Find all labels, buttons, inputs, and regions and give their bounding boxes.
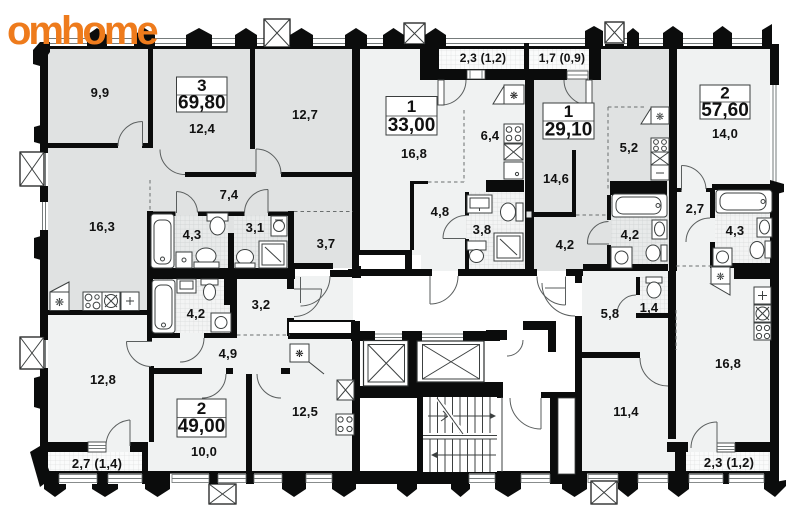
svg-text:❋: ❋ xyxy=(295,349,303,360)
svg-text:3,7: 3,7 xyxy=(317,236,336,251)
svg-text:2,7: 2,7 xyxy=(686,201,705,216)
svg-text:69,80: 69,80 xyxy=(178,93,226,114)
svg-text:❋: ❋ xyxy=(55,297,64,309)
svg-text:33,00: 33,00 xyxy=(388,115,436,136)
svg-text:57,60: 57,60 xyxy=(701,100,749,121)
svg-text:3,2: 3,2 xyxy=(252,297,271,312)
svg-text:4,8: 4,8 xyxy=(431,204,450,219)
svg-text:1,4: 1,4 xyxy=(640,300,659,315)
svg-text:1: 1 xyxy=(407,97,416,116)
svg-text:4,3: 4,3 xyxy=(726,223,745,238)
svg-text:5,2: 5,2 xyxy=(620,140,639,155)
svg-text:4,3: 4,3 xyxy=(183,227,202,242)
svg-text:3,1: 3,1 xyxy=(246,220,265,235)
svg-text:4,9: 4,9 xyxy=(219,346,238,361)
svg-text:1: 1 xyxy=(564,102,573,121)
svg-text:omhome: omhome xyxy=(7,9,157,53)
svg-text:12,4: 12,4 xyxy=(189,121,216,136)
svg-text:❋: ❋ xyxy=(656,112,664,123)
svg-text:4,2: 4,2 xyxy=(187,306,206,321)
svg-text:1,7 (0,9): 1,7 (0,9) xyxy=(539,51,586,65)
svg-text:16,8: 16,8 xyxy=(401,146,427,161)
svg-text:29,10: 29,10 xyxy=(545,120,593,141)
svg-text:❋: ❋ xyxy=(716,272,724,283)
svg-text:2,3 (1,2): 2,3 (1,2) xyxy=(704,455,754,470)
svg-text:10,0: 10,0 xyxy=(191,444,217,459)
svg-text:3,8: 3,8 xyxy=(473,222,492,237)
svg-text:❋: ❋ xyxy=(510,91,518,102)
svg-text:5,8: 5,8 xyxy=(601,306,620,321)
svg-text:12,5: 12,5 xyxy=(292,404,318,419)
svg-text:16,3: 16,3 xyxy=(89,219,115,234)
svg-text:4,2: 4,2 xyxy=(621,227,640,242)
svg-text:7,4: 7,4 xyxy=(220,187,239,202)
svg-text:12,8: 12,8 xyxy=(90,372,116,387)
svg-text:9,9: 9,9 xyxy=(91,85,110,100)
svg-text:14,0: 14,0 xyxy=(712,126,738,141)
svg-text:49,00: 49,00 xyxy=(178,416,226,437)
svg-text:14,6: 14,6 xyxy=(543,171,569,186)
svg-text:4,2: 4,2 xyxy=(556,237,575,252)
svg-text:16,8: 16,8 xyxy=(715,356,741,371)
svg-text:12,7: 12,7 xyxy=(292,107,318,122)
svg-text:11,4: 11,4 xyxy=(613,404,639,419)
svg-text:6,4: 6,4 xyxy=(481,128,500,143)
svg-text:2,3 (1,2): 2,3 (1,2) xyxy=(460,51,507,65)
svg-text:2,7 (1,4): 2,7 (1,4) xyxy=(72,456,122,471)
